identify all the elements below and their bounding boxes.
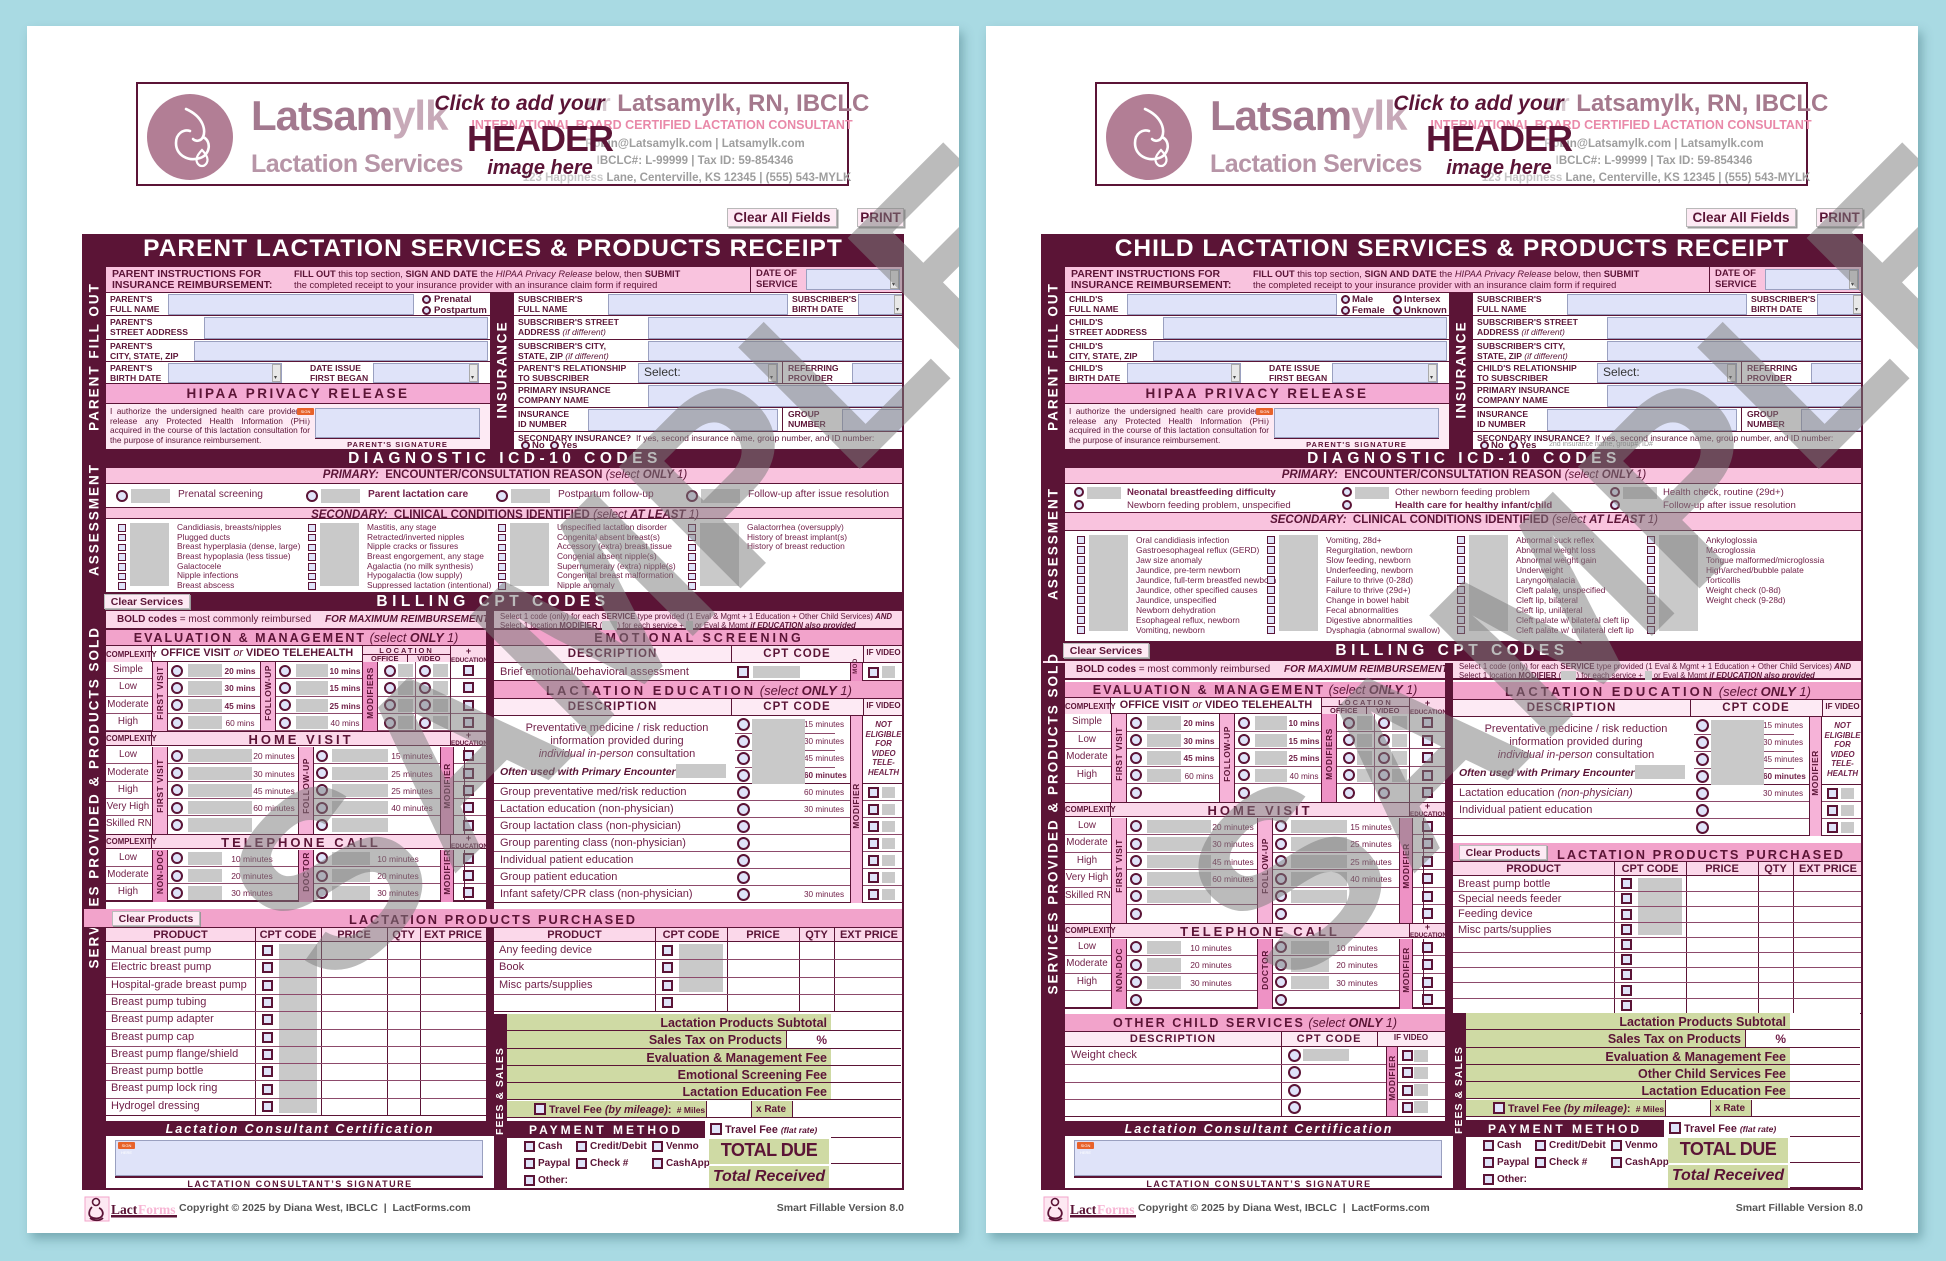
svg-text:Forms: Forms (138, 1202, 176, 1217)
svg-text:Lact: Lact (1070, 1202, 1097, 1217)
svg-text:Forms: Forms (1097, 1202, 1135, 1217)
svg-text:Lact: Lact (111, 1202, 138, 1217)
